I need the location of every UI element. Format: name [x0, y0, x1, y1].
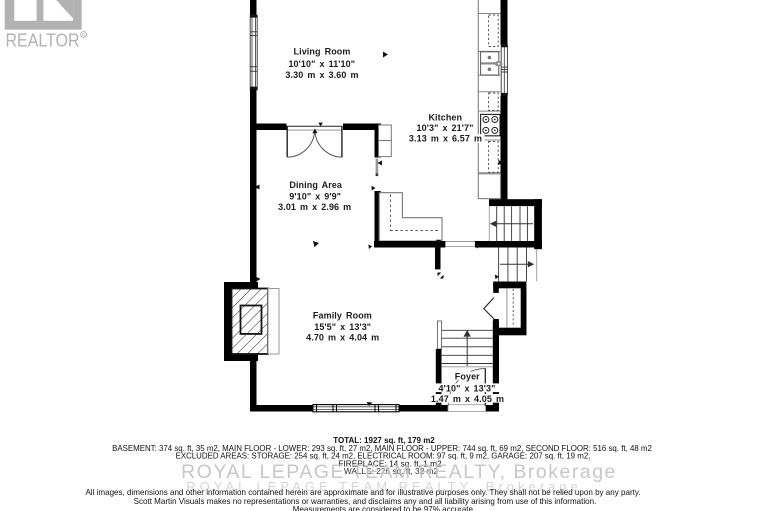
svg-text:15'5" x 13'3": 15'5" x 13'3": [314, 322, 371, 332]
svg-text:All images, dimensions and oth: All images, dimensions and other informa…: [85, 488, 640, 497]
svg-text:4'10" x 13'3": 4'10" x 13'3": [439, 383, 496, 393]
svg-text:Living Room: Living Room: [294, 47, 351, 57]
svg-text:Family Room: Family Room: [313, 311, 372, 321]
svg-text:3.30 m x 3.60 m: 3.30 m x 3.60 m: [285, 70, 358, 80]
svg-text:REALTOR: REALTOR: [6, 31, 80, 51]
svg-text:1.47 m x 4.05 m: 1.47 m x 4.05 m: [431, 394, 504, 404]
svg-text:Dining Area: Dining Area: [289, 180, 343, 190]
svg-text:3.01 m x 2.96 m: 3.01 m x 2.96 m: [278, 202, 351, 212]
svg-text:Measurements are considered to: Measurements are considered to be 97% ac…: [293, 505, 476, 511]
svg-text:10'3" x 21'7": 10'3" x 21'7": [417, 123, 474, 133]
svg-text:10'10" x 11'10": 10'10" x 11'10": [288, 59, 355, 69]
svg-text:4.70 m x 4.04 m: 4.70 m x 4.04 m: [306, 332, 379, 342]
svg-text:9'10" x 9'9": 9'10" x 9'9": [289, 191, 341, 201]
svg-text:Foyer: Foyer: [455, 371, 480, 381]
svg-text:3.13 m x 6.57 m: 3.13 m x 6.57 m: [409, 133, 482, 143]
svg-text:Kitchen: Kitchen: [428, 112, 462, 122]
svg-text:R: R: [82, 33, 86, 39]
